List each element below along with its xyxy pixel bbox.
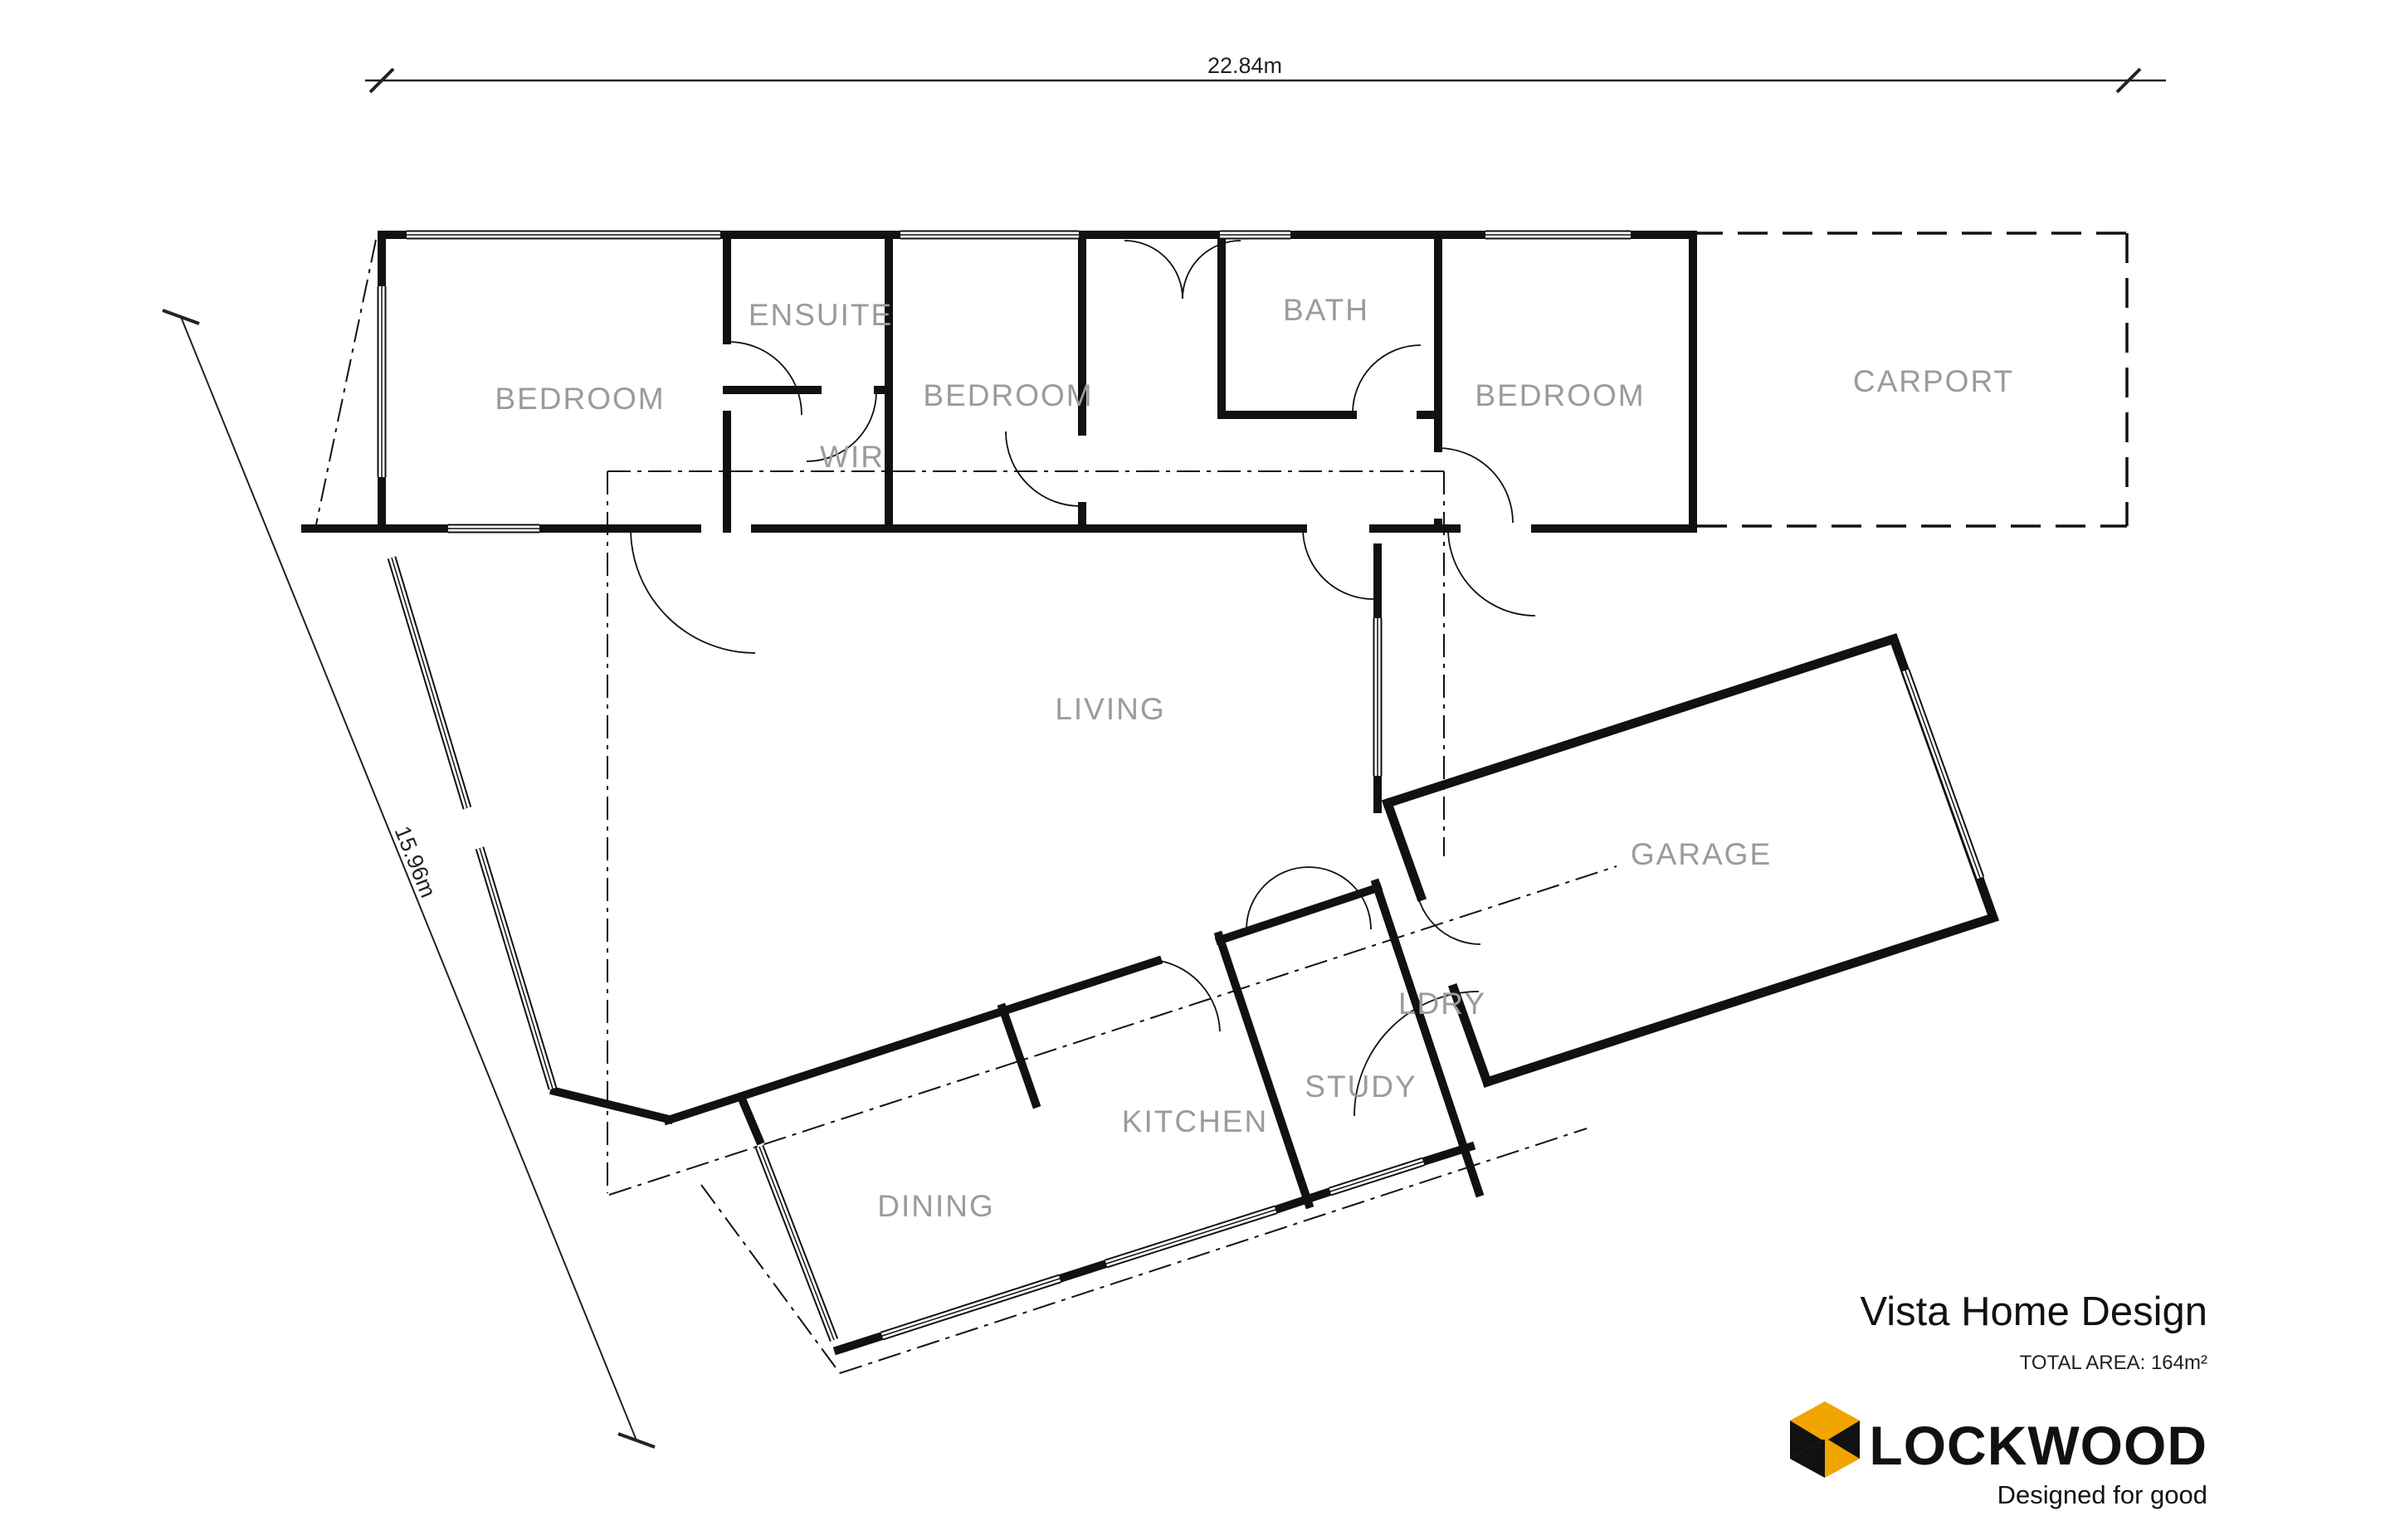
floor-plan-drawing: 22.84m 15.96m — [0, 0, 2390, 1540]
brand-tagline: Designed for good — [1997, 1480, 2207, 1509]
room-label-dining: DINING — [877, 1189, 995, 1223]
design-title: Vista Home Design — [1860, 1289, 2207, 1334]
room-label-carport: CARPORT — [1853, 364, 2014, 398]
walls-living-wing — [554, 548, 1479, 1350]
room-label-garage: GARAGE — [1631, 837, 1772, 871]
brand-wordmark: LOCKWOOD — [1869, 1415, 2207, 1476]
floor-plan-sheet: 22.84m 15.96m — [0, 0, 2390, 1540]
lockwood-hexagon-icon — [1790, 1401, 1860, 1478]
dimension-width-label: 22.84m — [1207, 53, 1282, 78]
room-label-bedroom-mid: BEDROOM — [923, 378, 1093, 412]
room-label-living: LIVING — [1055, 692, 1165, 726]
room-label-kitchen: KITCHEN — [1122, 1104, 1268, 1138]
dimension-side-label: 15.96m — [390, 822, 441, 901]
title-block: Vista Home Design TOTAL AREA: 164m² LOCK… — [1790, 1289, 2207, 1509]
room-label-ldry: LDRY — [1398, 987, 1486, 1021]
dimension-lines — [163, 69, 2166, 1447]
room-label-wir: WIR — [820, 440, 885, 474]
room-label-bedroom-left: BEDROOM — [495, 382, 665, 416]
room-label-bedroom-right: BEDROOM — [1475, 378, 1645, 412]
room-label-bath: BATH — [1283, 293, 1369, 327]
room-label-study: STUDY — [1305, 1070, 1417, 1104]
total-area-label: TOTAL AREA: 164m² — [2020, 1352, 2207, 1374]
room-label-ensuite: ENSUITE — [749, 298, 893, 332]
